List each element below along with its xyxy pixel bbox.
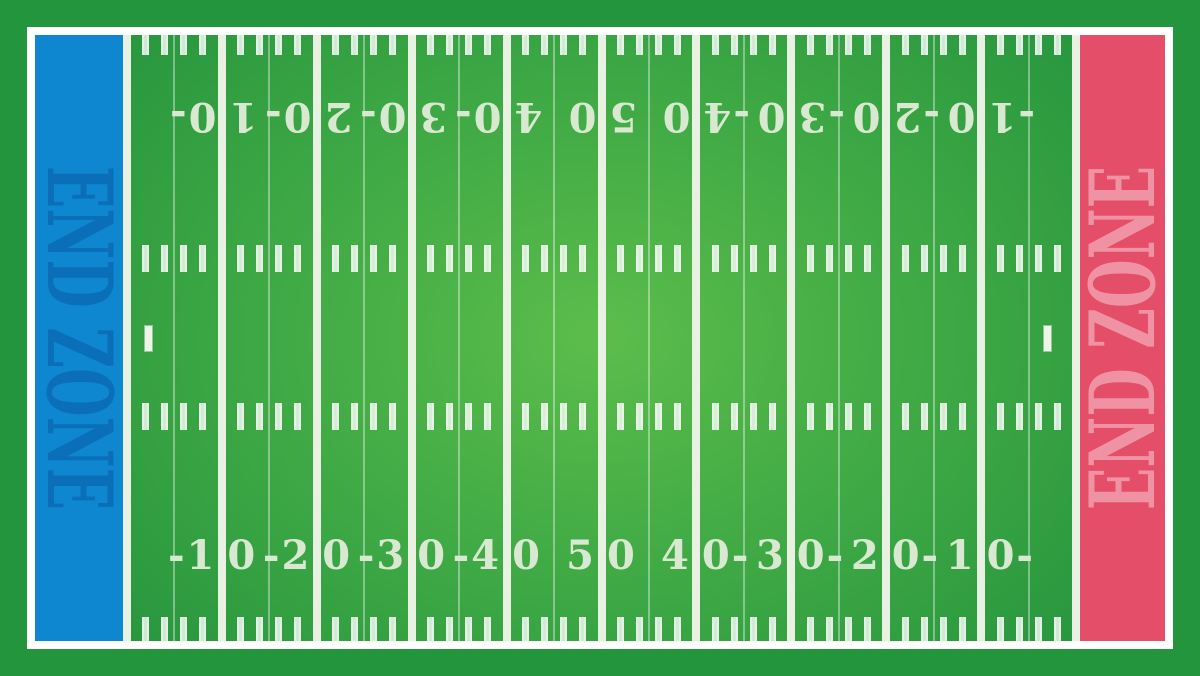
hash-mark [294, 617, 301, 644]
hash-mark [351, 245, 358, 272]
hash-mark [142, 617, 149, 644]
hash-mark [522, 617, 529, 644]
hash-mark [199, 617, 206, 644]
hash-mark [750, 31, 757, 55]
hash-mark [446, 403, 453, 430]
hash-mark [1035, 31, 1042, 55]
hash-mark [997, 245, 1004, 272]
hash-mark [617, 31, 624, 55]
hash-mark [446, 245, 453, 272]
hash-mark [389, 245, 396, 272]
hash-mark [199, 245, 206, 272]
hash-mark [389, 31, 396, 55]
hash-mark [161, 245, 168, 272]
yard-number-left-part: -3 [342, 532, 407, 580]
hash-mark [389, 403, 396, 430]
hash-mark [484, 617, 491, 644]
hash-mark [427, 403, 434, 430]
hash-mark [902, 617, 909, 644]
yard-number-right-part: 0 [626, 92, 691, 140]
hash-mark [1054, 31, 1061, 55]
yard-number-left-part: -2 [247, 532, 312, 580]
hash-mark [351, 31, 358, 55]
hash-mark [237, 617, 244, 644]
yard-number-bottom: 10- [911, 532, 1051, 580]
goal-line-right [1072, 35, 1080, 641]
yard-number-right-part: 0 [721, 92, 786, 140]
hash-mark [1035, 245, 1042, 272]
hash-mark [199, 403, 206, 430]
hash-mark [731, 31, 738, 55]
goal-line-center-tick [144, 325, 153, 352]
hash-mark [294, 31, 301, 55]
hash-mark [541, 403, 548, 430]
yard-number-left-part: 2 [816, 532, 881, 580]
hash-mark [712, 403, 719, 430]
hash-mark [1054, 245, 1061, 272]
hash-mark [997, 403, 1004, 430]
hash-mark [902, 245, 909, 272]
hash-mark [199, 31, 206, 55]
hash-mark [484, 403, 491, 430]
hash-mark [674, 245, 681, 272]
hash-mark [370, 31, 377, 55]
hash-mark [655, 31, 662, 55]
hash-mark [807, 617, 814, 644]
hash-mark [921, 245, 928, 272]
hash-mark [541, 245, 548, 272]
yard-number-right-part: 0- [437, 92, 502, 140]
hash-mark [275, 245, 282, 272]
hash-mark [655, 403, 662, 430]
hash-mark [845, 403, 852, 430]
hash-mark [921, 31, 928, 55]
hash-mark [674, 617, 681, 644]
hash-mark [1016, 245, 1023, 272]
hash-mark [750, 403, 757, 430]
hash-mark [1054, 403, 1061, 430]
hash-mark [180, 617, 187, 644]
hash-mark [294, 403, 301, 430]
yard-number-left-part: -4 [437, 532, 502, 580]
hash-mark [997, 617, 1004, 644]
hash-mark [370, 403, 377, 430]
hash-mark [617, 245, 624, 272]
yard-number-right-part: 0- [152, 92, 217, 140]
hash-mark [674, 403, 681, 430]
hash-mark [940, 403, 947, 430]
hash-mark [864, 617, 871, 644]
yard-number-right-part: 0 [816, 92, 881, 140]
hash-mark [921, 617, 928, 644]
hash-mark [826, 245, 833, 272]
hash-mark [921, 403, 928, 430]
end-zone-left: END ZONE [35, 35, 123, 641]
hash-mark [712, 617, 719, 644]
hash-mark [712, 245, 719, 272]
hash-mark [522, 403, 529, 430]
hash-mark [807, 403, 814, 430]
yard-number-left-part: 4 [626, 532, 691, 580]
hash-mark [370, 617, 377, 644]
hash-mark [256, 403, 263, 430]
hash-mark [845, 245, 852, 272]
hash-mark [522, 31, 529, 55]
hash-mark [180, 245, 187, 272]
hash-mark [750, 245, 757, 272]
hash-mark [731, 403, 738, 430]
hash-mark [465, 245, 472, 272]
hash-mark [655, 245, 662, 272]
playing-field: END ZONE END ZONE 10-20-30-40-50-40-30-2… [35, 35, 1165, 641]
hash-mark [256, 617, 263, 644]
hash-mark [940, 245, 947, 272]
hash-mark [845, 617, 852, 644]
hash-mark [541, 617, 548, 644]
hash-mark [731, 245, 738, 272]
hash-mark [332, 245, 339, 272]
hash-mark [864, 403, 871, 430]
end-zone-right-label: END ZONE [1078, 166, 1168, 510]
hash-mark [864, 245, 871, 272]
hash-mark [275, 617, 282, 644]
hash-mark [750, 617, 757, 644]
yard-number-left-part: 5 [532, 532, 597, 580]
hash-mark [579, 245, 586, 272]
hash-mark [237, 31, 244, 55]
hash-mark [142, 403, 149, 430]
hash-mark [636, 403, 643, 430]
hash-mark [826, 617, 833, 644]
hash-mark [769, 617, 776, 644]
hash-mark [560, 245, 567, 272]
yard-number-left-part: -1 [152, 532, 217, 580]
hash-mark [959, 403, 966, 430]
hash-mark [769, 403, 776, 430]
hash-mark [351, 617, 358, 644]
hash-mark [351, 403, 358, 430]
hash-mark [1016, 403, 1023, 430]
hash-mark [826, 31, 833, 55]
yard-number-left-part: 1 [911, 532, 976, 580]
hash-mark [902, 31, 909, 55]
yard-number-right-part: 0- [342, 92, 407, 140]
hash-mark [522, 245, 529, 272]
hash-mark [541, 31, 548, 55]
hash-mark [142, 31, 149, 55]
hash-mark [940, 31, 947, 55]
hash-mark [845, 31, 852, 55]
hash-mark [655, 617, 662, 644]
hash-mark [427, 245, 434, 272]
hash-mark [997, 31, 1004, 55]
yard-number-right-part: 0 [532, 92, 597, 140]
yard-number-right-part: 0- [247, 92, 312, 140]
hash-mark [560, 403, 567, 430]
hash-mark [940, 617, 947, 644]
hash-mark [959, 617, 966, 644]
goal-line-left [123, 35, 131, 641]
yard-number-right-part: 0- [987, 532, 1052, 580]
hash-mark [1016, 31, 1023, 55]
hash-mark [275, 403, 282, 430]
hash-mark [180, 403, 187, 430]
hash-mark [161, 31, 168, 55]
hash-mark [294, 245, 301, 272]
hash-mark [237, 403, 244, 430]
end-zone-right: END ZONE [1080, 35, 1165, 641]
hash-mark [712, 31, 719, 55]
yard-number-right-part: 0 [911, 92, 976, 140]
hash-mark [180, 31, 187, 55]
hash-mark [332, 31, 339, 55]
hash-mark [959, 245, 966, 272]
hash-mark [807, 245, 814, 272]
hash-mark [617, 403, 624, 430]
hash-mark [465, 617, 472, 644]
yard-number-left-part: 3 [721, 532, 786, 580]
hash-mark [560, 617, 567, 644]
hash-mark [161, 617, 168, 644]
hash-mark [161, 403, 168, 430]
hash-mark [617, 617, 624, 644]
hash-mark [484, 31, 491, 55]
hash-mark [256, 31, 263, 55]
goal-line-center-tick [1043, 325, 1052, 352]
hash-mark [807, 31, 814, 55]
hash-mark [1035, 403, 1042, 430]
hash-mark [332, 403, 339, 430]
hash-mark [446, 617, 453, 644]
hash-mark [769, 31, 776, 55]
hash-mark [1054, 617, 1061, 644]
hash-mark [959, 31, 966, 55]
hash-mark [389, 617, 396, 644]
hash-mark [636, 617, 643, 644]
hash-mark [1035, 617, 1042, 644]
hash-mark [902, 403, 909, 430]
hash-mark [579, 31, 586, 55]
hash-mark [636, 31, 643, 55]
hash-mark [769, 245, 776, 272]
football-field-illustration: END ZONE END ZONE 10-20-30-40-50-40-30-2… [0, 0, 1200, 676]
hash-mark [674, 31, 681, 55]
hash-mark [446, 31, 453, 55]
hash-mark [826, 403, 833, 430]
hash-mark [636, 245, 643, 272]
hash-mark [332, 617, 339, 644]
yard-number-top: -10 [911, 92, 1051, 140]
hash-mark [142, 245, 149, 272]
hash-mark [427, 617, 434, 644]
hash-mark [1016, 617, 1023, 644]
hash-mark [484, 245, 491, 272]
hash-mark [560, 31, 567, 55]
hash-mark [370, 245, 377, 272]
hash-mark [256, 245, 263, 272]
end-zone-left-label: END ZONE [34, 166, 124, 510]
yard-number-left-part: -1 [987, 92, 1052, 140]
hash-mark [465, 31, 472, 55]
hash-mark [864, 31, 871, 55]
hash-mark [427, 31, 434, 55]
hash-mark [465, 403, 472, 430]
hash-mark [275, 31, 282, 55]
hash-mark [579, 403, 586, 430]
hash-mark [731, 617, 738, 644]
hash-mark [579, 617, 586, 644]
hash-mark [237, 245, 244, 272]
